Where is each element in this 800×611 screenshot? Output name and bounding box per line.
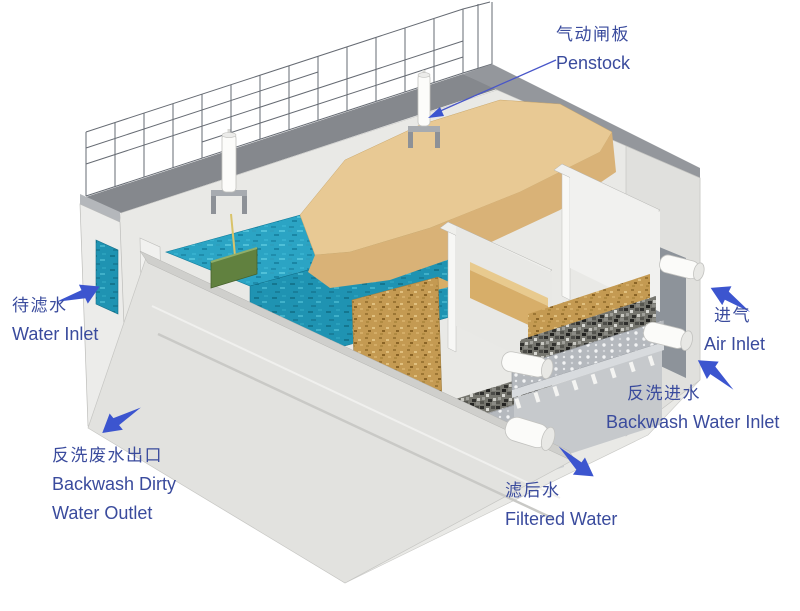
water-inlet-label-en: Water Inlet — [12, 320, 98, 349]
filtered-water-label-zh: 滤后水 — [505, 476, 617, 505]
backwash-water-inlet-label-zh: 反洗进水 — [627, 379, 779, 408]
penstock-label-en: Penstock — [556, 49, 630, 78]
filtered-water-label-en: Filtered Water — [505, 505, 617, 534]
backwash-outlet-label-en2: Water Outlet — [52, 499, 176, 528]
filter-tank-diagram: 气动闸板 Penstock 待滤水 Water Inlet 反洗废水出口 Bac… — [0, 0, 800, 611]
air-inlet-label-zh: 进气 — [714, 301, 765, 330]
penstock-label: 气动闸板 Penstock — [556, 20, 630, 78]
partition-wall-2-end — [562, 164, 570, 300]
water-inlet-label-zh: 待滤水 — [12, 291, 98, 320]
air-inlet-label-en: Air Inlet — [704, 330, 765, 359]
partition-wall-1-end — [448, 222, 456, 352]
backwash-water-inlet-label-en: Backwash Water Inlet — [606, 408, 779, 437]
backwash-outlet-label-en1: Backwash Dirty — [52, 470, 176, 499]
water-inlet-window — [96, 240, 118, 314]
water-inlet-label: 待滤水 Water Inlet — [12, 291, 98, 349]
filtered-water-label: 滤后水 Filtered Water — [505, 476, 617, 534]
air-inlet-label: 进气 Air Inlet — [704, 301, 765, 359]
penstock-label-zh: 气动闸板 — [556, 20, 630, 49]
backwash-outlet-label-zh: 反洗废水出口 — [52, 441, 176, 470]
backwash-dirty-water-outlet-label: 反洗废水出口 Backwash Dirty Water Outlet — [52, 441, 176, 528]
backwash-water-inlet-label: 反洗进水 Backwash Water Inlet — [606, 379, 779, 437]
